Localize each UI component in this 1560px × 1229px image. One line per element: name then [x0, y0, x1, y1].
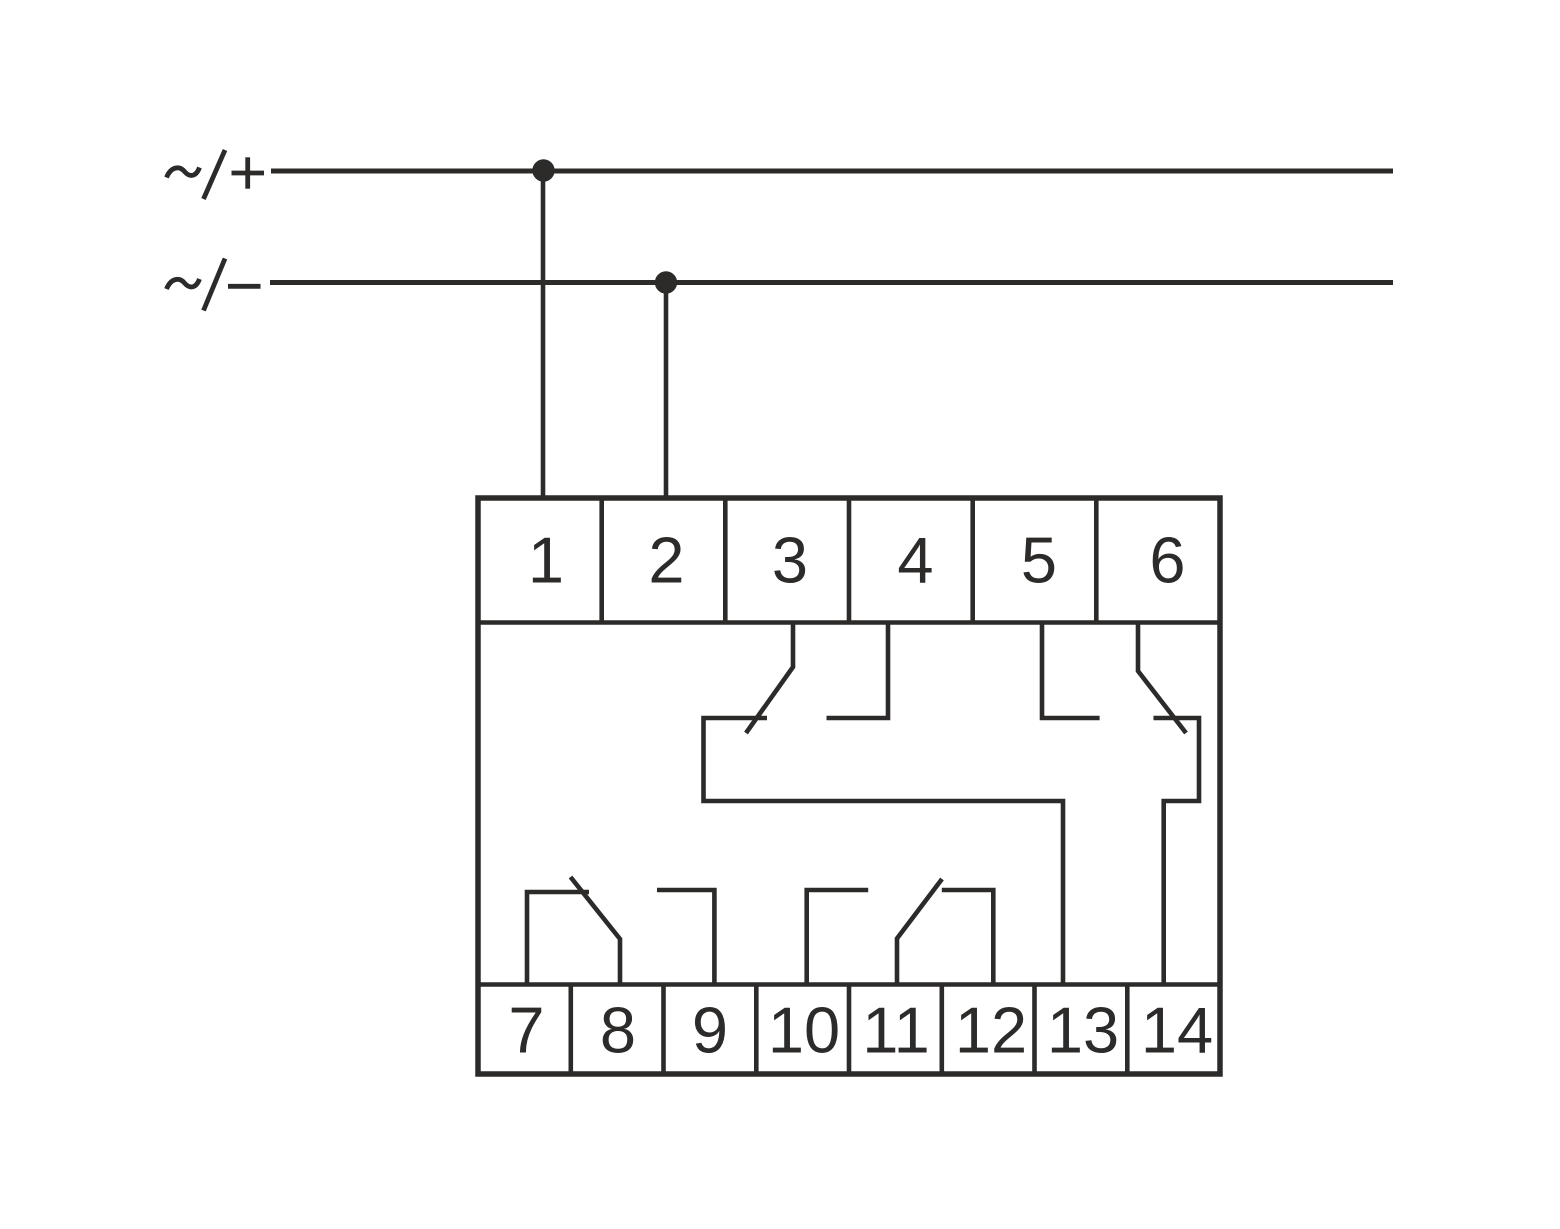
svg-text:3: 3 [772, 524, 808, 597]
svg-text:13: 13 [1047, 994, 1119, 1067]
svg-text:4: 4 [897, 524, 933, 597]
svg-text:10: 10 [768, 994, 840, 1067]
svg-text:14: 14 [1141, 994, 1213, 1067]
svg-text:7: 7 [508, 994, 544, 1067]
svg-text:11: 11 [862, 994, 929, 1067]
svg-text:12: 12 [955, 994, 1027, 1067]
svg-text:1: 1 [528, 524, 564, 597]
svg-text:8: 8 [600, 994, 636, 1067]
svg-text:6: 6 [1149, 524, 1185, 597]
svg-text:9: 9 [692, 994, 728, 1067]
svg-text:2: 2 [648, 524, 684, 597]
svg-text:5: 5 [1021, 524, 1057, 597]
